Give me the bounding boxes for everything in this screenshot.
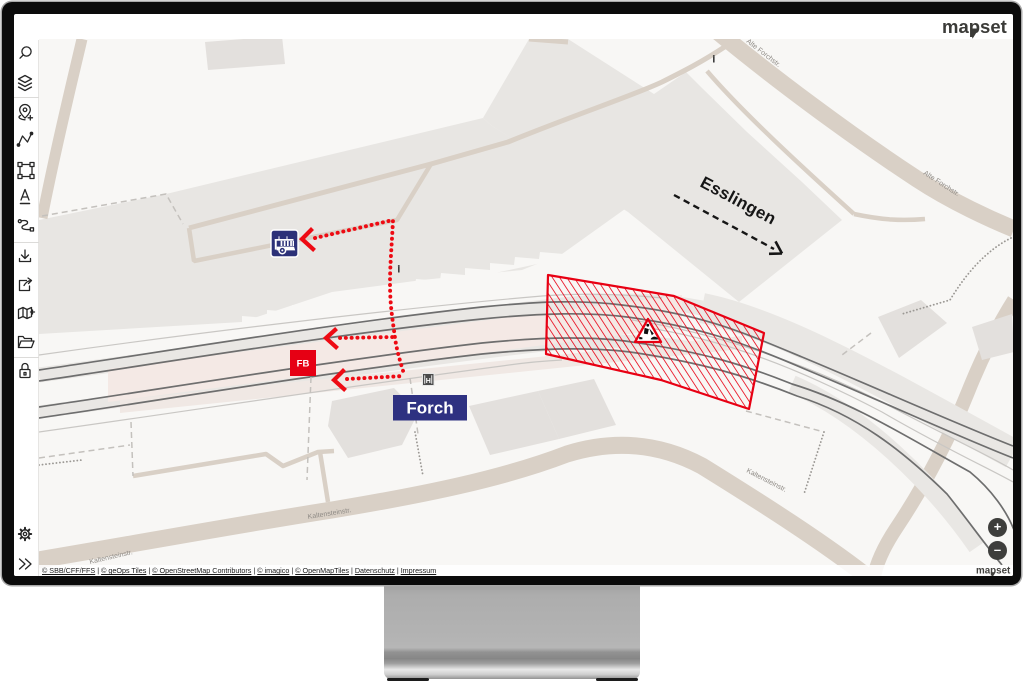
svg-text:H: H [426, 378, 431, 385]
svg-text:Forch: Forch [406, 399, 453, 418]
svg-text:FB: FB [297, 359, 310, 370]
